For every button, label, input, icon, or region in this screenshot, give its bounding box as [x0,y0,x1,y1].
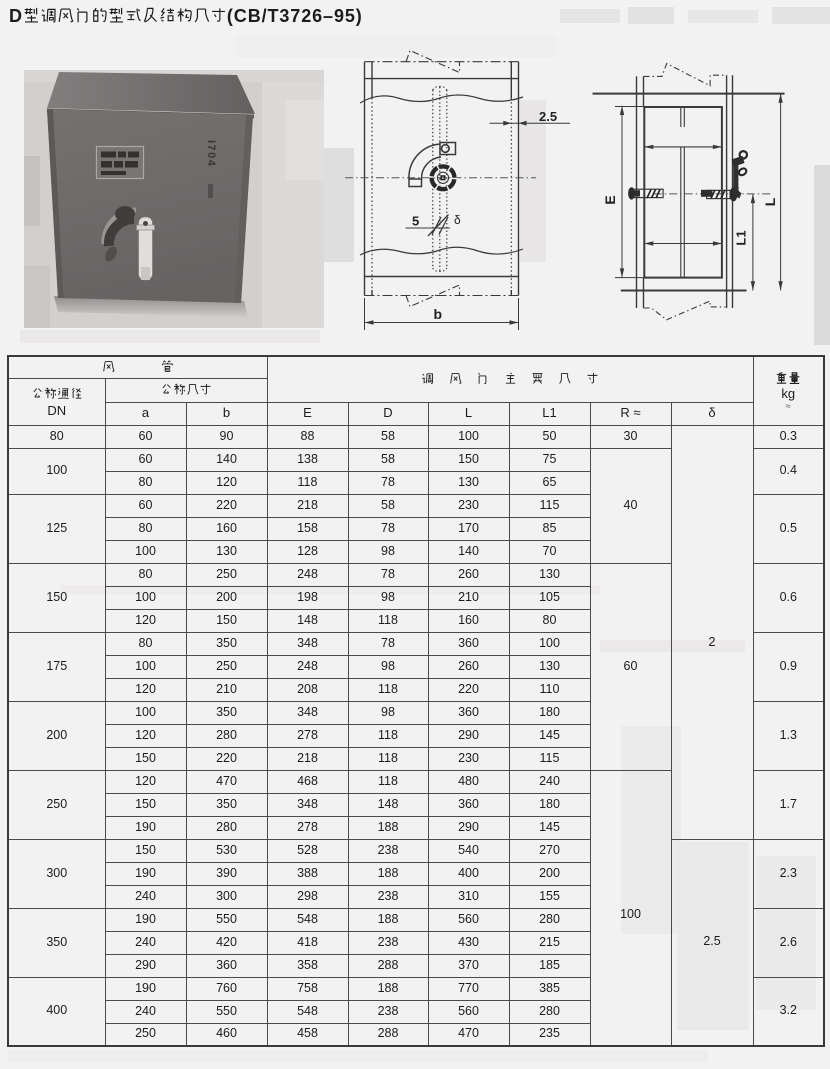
svg-text:L1: L1 [734,230,749,245]
svg-text:5: 5 [412,214,419,229]
svg-text:δ: δ [454,213,461,227]
svg-text:I704: I704 [205,140,217,167]
svg-text:L: L [762,197,778,206]
svg-text:b: b [434,306,443,322]
svg-text:E: E [602,195,618,204]
